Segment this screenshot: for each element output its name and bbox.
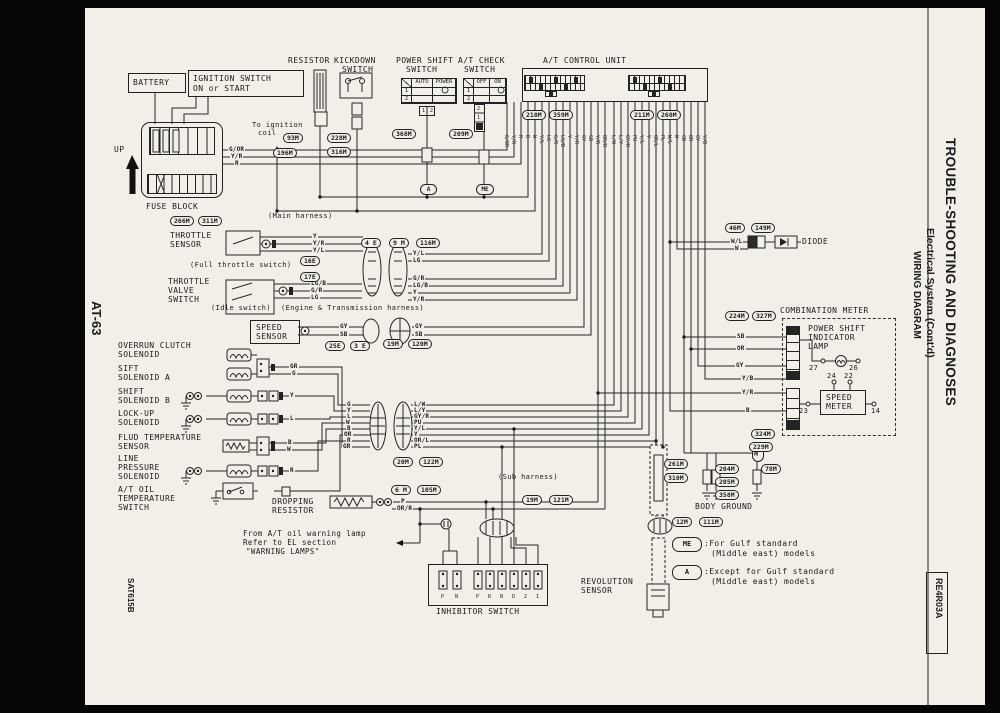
chk-conn-pin-2: 2 bbox=[477, 106, 480, 112]
dropping-label-1: DROPPING bbox=[272, 497, 314, 506]
overrun-label-1: OVERRUN CLUTCH bbox=[118, 341, 191, 350]
wire-g-or: G/OR bbox=[228, 146, 245, 153]
overrun-label-2: SOLENOID bbox=[118, 350, 160, 359]
connector-93M: 93M bbox=[283, 133, 303, 143]
ignition-label-1: IGNITION SWITCH bbox=[193, 74, 271, 83]
connector-205M: 205M bbox=[715, 477, 739, 487]
battery-label: BATTERY bbox=[133, 78, 170, 87]
inh-pin-d: D bbox=[512, 594, 515, 600]
connector-368M: 368M bbox=[392, 129, 416, 139]
throttle-sensor-label-2: SENSOR bbox=[170, 240, 201, 249]
connector-224M: 224M bbox=[725, 311, 749, 321]
revolution-sensor-lower bbox=[652, 538, 665, 584]
connector-204M: 204M bbox=[715, 464, 739, 474]
cu-pin-r7: OR/L bbox=[652, 135, 658, 147]
to-coil-label-1: To ignition bbox=[252, 121, 303, 129]
legend-badge-me: ME bbox=[672, 537, 702, 552]
connector-310M: 310M bbox=[664, 473, 688, 483]
wire-sol-l: L bbox=[289, 415, 295, 422]
connector-196M: 196M bbox=[273, 148, 297, 158]
lockup-label-1: LOCK-UP bbox=[118, 409, 155, 418]
cu-pin-r10: W bbox=[673, 135, 679, 138]
cu-pin-l2: R bbox=[517, 135, 523, 138]
inh-pin-p2: P bbox=[476, 594, 479, 600]
wire-p: P bbox=[400, 498, 406, 505]
lockup-label-2: SOLENOID bbox=[118, 418, 160, 427]
combination-meter-label: COMBINATION METER bbox=[780, 306, 869, 315]
wire-meter-yb: Y/B bbox=[741, 375, 754, 382]
wire-v3: LG bbox=[310, 294, 320, 301]
connector-111M: 111M bbox=[699, 517, 723, 527]
connector-16E: 16E bbox=[300, 256, 320, 266]
cu-pin-l10: Y/R bbox=[573, 135, 579, 144]
wire-t3: Y/L bbox=[312, 247, 325, 254]
sm-pin-14: 14 bbox=[871, 407, 880, 415]
fuse-block-label: FUSE BLOCK bbox=[146, 202, 198, 211]
wire-vr2: LG/B bbox=[412, 282, 429, 289]
legend-badge-a: A bbox=[672, 565, 702, 580]
badge-a: A bbox=[420, 184, 437, 195]
cu-pin-l7: G/R bbox=[552, 135, 558, 144]
inh-pin-1: 1 bbox=[536, 594, 539, 600]
connector-260M: 260M bbox=[657, 110, 681, 120]
bus-left-gr: GR bbox=[342, 443, 352, 450]
wire-t1: Y bbox=[312, 233, 318, 240]
revolution-label-2: SENSOR bbox=[581, 586, 612, 595]
cu-pin-l11: GY bbox=[580, 135, 586, 141]
lamp-pin-27: 27 bbox=[809, 364, 818, 372]
linep-label-3: SOLENOID bbox=[118, 472, 160, 481]
cu-pin-l4: W bbox=[531, 135, 537, 138]
sidebar-subtitle2: WIRING DIAGRAM bbox=[911, 251, 922, 339]
speed-sensor-label-1: SPEED bbox=[256, 323, 282, 332]
revolution-label-1: REVOLUTION bbox=[581, 577, 633, 586]
inh-pin-n1: N bbox=[455, 594, 458, 600]
connector-122M: 122M bbox=[419, 457, 443, 467]
up-arrow-icon bbox=[126, 155, 139, 194]
wire-w-l: W/L bbox=[730, 238, 743, 245]
atoil-label-3: SWITCH bbox=[118, 503, 149, 512]
legend-me-text-1: :For Gulf standard bbox=[704, 539, 798, 548]
cu-pin-r12: OR bbox=[687, 135, 693, 141]
psi-label-3: LAMP bbox=[808, 342, 829, 351]
wire-sol-y: Y bbox=[289, 392, 295, 399]
cu-pin-l3: B bbox=[524, 135, 530, 138]
connector-316M: 316M bbox=[327, 147, 351, 157]
atoil-label-1: A/T OIL bbox=[118, 485, 155, 494]
sm-pin-22: 22 bbox=[844, 372, 853, 380]
sm-pin-24: 24 bbox=[827, 372, 836, 380]
connector-12M: 12M bbox=[672, 517, 692, 527]
cu-pin-r9: W/L bbox=[666, 135, 672, 144]
wire-y-r: Y/R bbox=[230, 153, 243, 160]
legend-a-text-1: :Except for Gulf standard bbox=[704, 567, 834, 576]
cu-pin-l8: LG/B bbox=[559, 135, 565, 147]
connector-211M: 211M bbox=[630, 110, 654, 120]
cu-pin-r0: OR/R bbox=[601, 135, 607, 147]
page-number: AT-63 bbox=[89, 301, 104, 335]
connector-266M: 266M bbox=[170, 216, 194, 226]
lamp-pin-26: 26 bbox=[849, 364, 858, 372]
wire-r: R bbox=[234, 160, 240, 167]
photo-code: SAT615B bbox=[126, 578, 135, 613]
wire-gy-1: GY bbox=[339, 323, 349, 330]
cu-pin-r4: PU bbox=[631, 135, 637, 141]
wire-sol-w: W bbox=[286, 446, 292, 453]
power-shift-label-1: POWER SHIFT bbox=[396, 56, 453, 65]
indicator-lamp-symbol bbox=[836, 356, 847, 367]
fluid-label-1: FLUD TEMPERATURE bbox=[118, 433, 201, 442]
wire-meter-yr: Y/R bbox=[741, 389, 754, 396]
connector-25E: 25E bbox=[325, 341, 345, 351]
cu-pin-r1: L/W bbox=[610, 135, 616, 144]
connector-105M: 105M bbox=[417, 485, 441, 495]
cu-pin-r13: GY bbox=[694, 135, 700, 141]
psi-label-2: INDICATOR bbox=[808, 333, 855, 342]
wire-sol-b: B bbox=[287, 439, 293, 446]
cu-pin-l0: G/OR bbox=[503, 135, 509, 147]
connector-4E: 4 E bbox=[361, 238, 381, 248]
cu-pin-l1: Y/R bbox=[510, 135, 516, 144]
shiftb-label-2: SOLENOID B bbox=[118, 396, 170, 405]
warning-note-1: From A/T oil warning lamp bbox=[243, 529, 366, 538]
speed-meter-label-1: SPEED bbox=[826, 393, 852, 402]
connector-229M: 229M bbox=[749, 442, 773, 452]
sub-harness-label: (Sub harness) bbox=[498, 473, 558, 481]
chk-conn-pin-1: 1 bbox=[477, 115, 480, 121]
up-label: UP bbox=[114, 145, 124, 154]
wire-v2: G/R bbox=[310, 287, 323, 294]
at-check-label-1: A/T CHECK bbox=[458, 56, 505, 65]
wire-meter-b: B bbox=[745, 407, 751, 414]
diode-label: DIODE bbox=[802, 237, 828, 246]
sidebar-title: TROUBLE-SHOOTING AND DIAGNOSES bbox=[943, 138, 958, 406]
kickdown-label-1: KICKDOWN bbox=[334, 56, 376, 65]
connector-327M: 327M bbox=[752, 311, 776, 321]
wire-t2: Y/R bbox=[312, 240, 325, 247]
at-check-label-2: SWITCH bbox=[464, 65, 495, 74]
ps-conn-pin-1: 1 bbox=[422, 108, 425, 114]
connector-19M-b: 19M bbox=[522, 495, 542, 505]
connector-149M: 149M bbox=[751, 223, 775, 233]
wire-vr3: Y bbox=[412, 289, 418, 296]
main-harness-label: (Main harness) bbox=[268, 212, 333, 220]
connector-261M: 261M bbox=[664, 459, 688, 469]
connector-19M-a: 19M bbox=[383, 339, 403, 349]
linep-label-1: LINE bbox=[118, 454, 139, 463]
wire-sol-r: R bbox=[289, 467, 295, 474]
cu-pin-r11: SB bbox=[680, 135, 686, 141]
resistor-label: RESISTOR bbox=[288, 56, 330, 65]
warning-note-3: "WARNING LAMPS" bbox=[246, 547, 320, 556]
warning-note-2: Refer to EL section bbox=[243, 538, 336, 547]
wire-sb-1: SB bbox=[339, 331, 349, 338]
full-throttle-label: (Full throttle switch) bbox=[190, 261, 292, 269]
inhibitor-label: INHIBITOR SWITCH bbox=[436, 607, 519, 616]
wire-meter-sb: SB bbox=[736, 333, 746, 340]
to-coil-label-2: coil bbox=[258, 129, 276, 137]
dropping-label-2: RESISTOR bbox=[272, 506, 314, 515]
wire-gy-2: GY bbox=[414, 323, 424, 330]
ref-code: RE4R03A bbox=[934, 578, 944, 619]
sift-label-1: SIFT bbox=[118, 364, 139, 373]
wire-vr4: Y/R bbox=[412, 296, 425, 303]
speed-meter-label-2: METER bbox=[826, 402, 852, 411]
cu-pin-r2: L/Y bbox=[617, 135, 623, 144]
engine-harness-label: (Engine & Transmission harness) bbox=[281, 304, 424, 312]
legend-a-text-2: (Middle east) models bbox=[711, 577, 815, 586]
connector-210M: 210M bbox=[522, 110, 546, 120]
wire-w: W bbox=[734, 245, 740, 252]
badge-me: ME bbox=[476, 184, 494, 195]
connector-121M: 121M bbox=[549, 495, 573, 505]
connector-78M: 78M bbox=[761, 464, 781, 474]
kickdown-label-2: SWITCH bbox=[342, 65, 373, 74]
wire-vr1: G/R bbox=[412, 275, 425, 282]
connector-358M: 358M bbox=[715, 490, 739, 500]
cu-pin-l5: Y/L bbox=[538, 135, 544, 144]
connector-359M: 359M bbox=[549, 110, 573, 120]
idle-switch-label: (Idle switch) bbox=[211, 304, 271, 312]
speed-sensor-label-2: SENSOR bbox=[256, 332, 287, 341]
wire-sb-2: SB bbox=[414, 331, 424, 338]
connector-20M: 20M bbox=[393, 457, 413, 467]
wire-sol-gr: GR bbox=[289, 363, 299, 370]
sidebar-subtitle: Electrical System (Cont'd) bbox=[924, 228, 936, 358]
cu-pin-l12: SB bbox=[587, 135, 593, 141]
connector-324M: 324M bbox=[751, 429, 775, 439]
wire-or-r: OR/R bbox=[396, 505, 413, 512]
legend-me-text-2: (Middle east) models bbox=[711, 549, 815, 558]
kickdown-switch-body bbox=[340, 73, 372, 98]
throttle-sensor-label-1: THROTTLE bbox=[170, 231, 212, 240]
sm-pin-23: 23 bbox=[799, 407, 808, 415]
body-ground-label: BODY GROUND bbox=[695, 502, 752, 511]
valve-label-1: THROTTLE bbox=[168, 277, 210, 286]
cu-pin-r8: PL bbox=[659, 135, 665, 141]
power-shift-label-2: SWITCH bbox=[406, 65, 437, 74]
inh-pin-n2: N bbox=[500, 594, 503, 600]
cu-pin-l6: LG bbox=[545, 135, 551, 141]
valve-label-2: VALVE bbox=[168, 286, 194, 295]
inh-pin-r: R bbox=[488, 594, 491, 600]
wire-meter-or: OR bbox=[736, 345, 746, 352]
connector-9M: 9 M bbox=[389, 238, 409, 248]
connector-17E: 17E bbox=[300, 272, 320, 282]
cu-pin-r6: Y bbox=[645, 135, 651, 138]
cu-pin-l9: Y bbox=[566, 135, 572, 138]
ps-conn-pin-2: 2 bbox=[430, 108, 433, 114]
wire-tr2: LG bbox=[412, 257, 422, 264]
connector-209M: 209M bbox=[449, 129, 473, 139]
shiftb-label-1: SHIFT bbox=[118, 387, 144, 396]
wire-meter-gy: GY bbox=[735, 362, 745, 369]
atoil-label-2: TEMPERATURE bbox=[118, 494, 175, 503]
wire-sol-g: G bbox=[291, 370, 297, 377]
ignition-label-2: ON or START bbox=[193, 84, 250, 93]
connector-120M: 120M bbox=[408, 339, 432, 349]
scanned-manual-page: AUTOPOWER 1 2 OFFON 1 2 bbox=[0, 0, 1000, 713]
connector-3E: 3 E bbox=[350, 341, 370, 351]
connector-228M: 228M bbox=[327, 133, 351, 143]
psi-label-1: POWER SHIFT bbox=[808, 324, 865, 333]
connector-6M: 6 M bbox=[391, 485, 411, 495]
connector-116M: 116M bbox=[416, 238, 440, 248]
valve-label-3: SWITCH bbox=[168, 295, 199, 304]
wire-tr1: Y/L bbox=[412, 250, 425, 257]
sift-label-2: SOLENOID A bbox=[118, 373, 170, 382]
inh-pin-2: 2 bbox=[524, 594, 527, 600]
cu-pin-l13: Y/R bbox=[594, 135, 600, 144]
cu-pin-r14: Y/B bbox=[701, 135, 707, 144]
inh-pin-p1: P bbox=[441, 594, 444, 600]
warning-note-arrow-icon bbox=[396, 540, 403, 546]
connector-46M: 46M bbox=[725, 223, 745, 233]
connector-311M: 311M bbox=[198, 216, 222, 226]
fluid-label-2: SENSOR bbox=[118, 442, 149, 451]
control-unit-label: A/T CONTROL UNIT bbox=[543, 56, 626, 65]
bus-right-pl: PL bbox=[413, 443, 423, 450]
cu-pin-r3: GY/R bbox=[624, 135, 630, 147]
throttle-sensor-body bbox=[226, 231, 260, 255]
linep-label-2: PRESSURE bbox=[118, 463, 160, 472]
cu-pin-r5: Y/L bbox=[638, 135, 644, 144]
